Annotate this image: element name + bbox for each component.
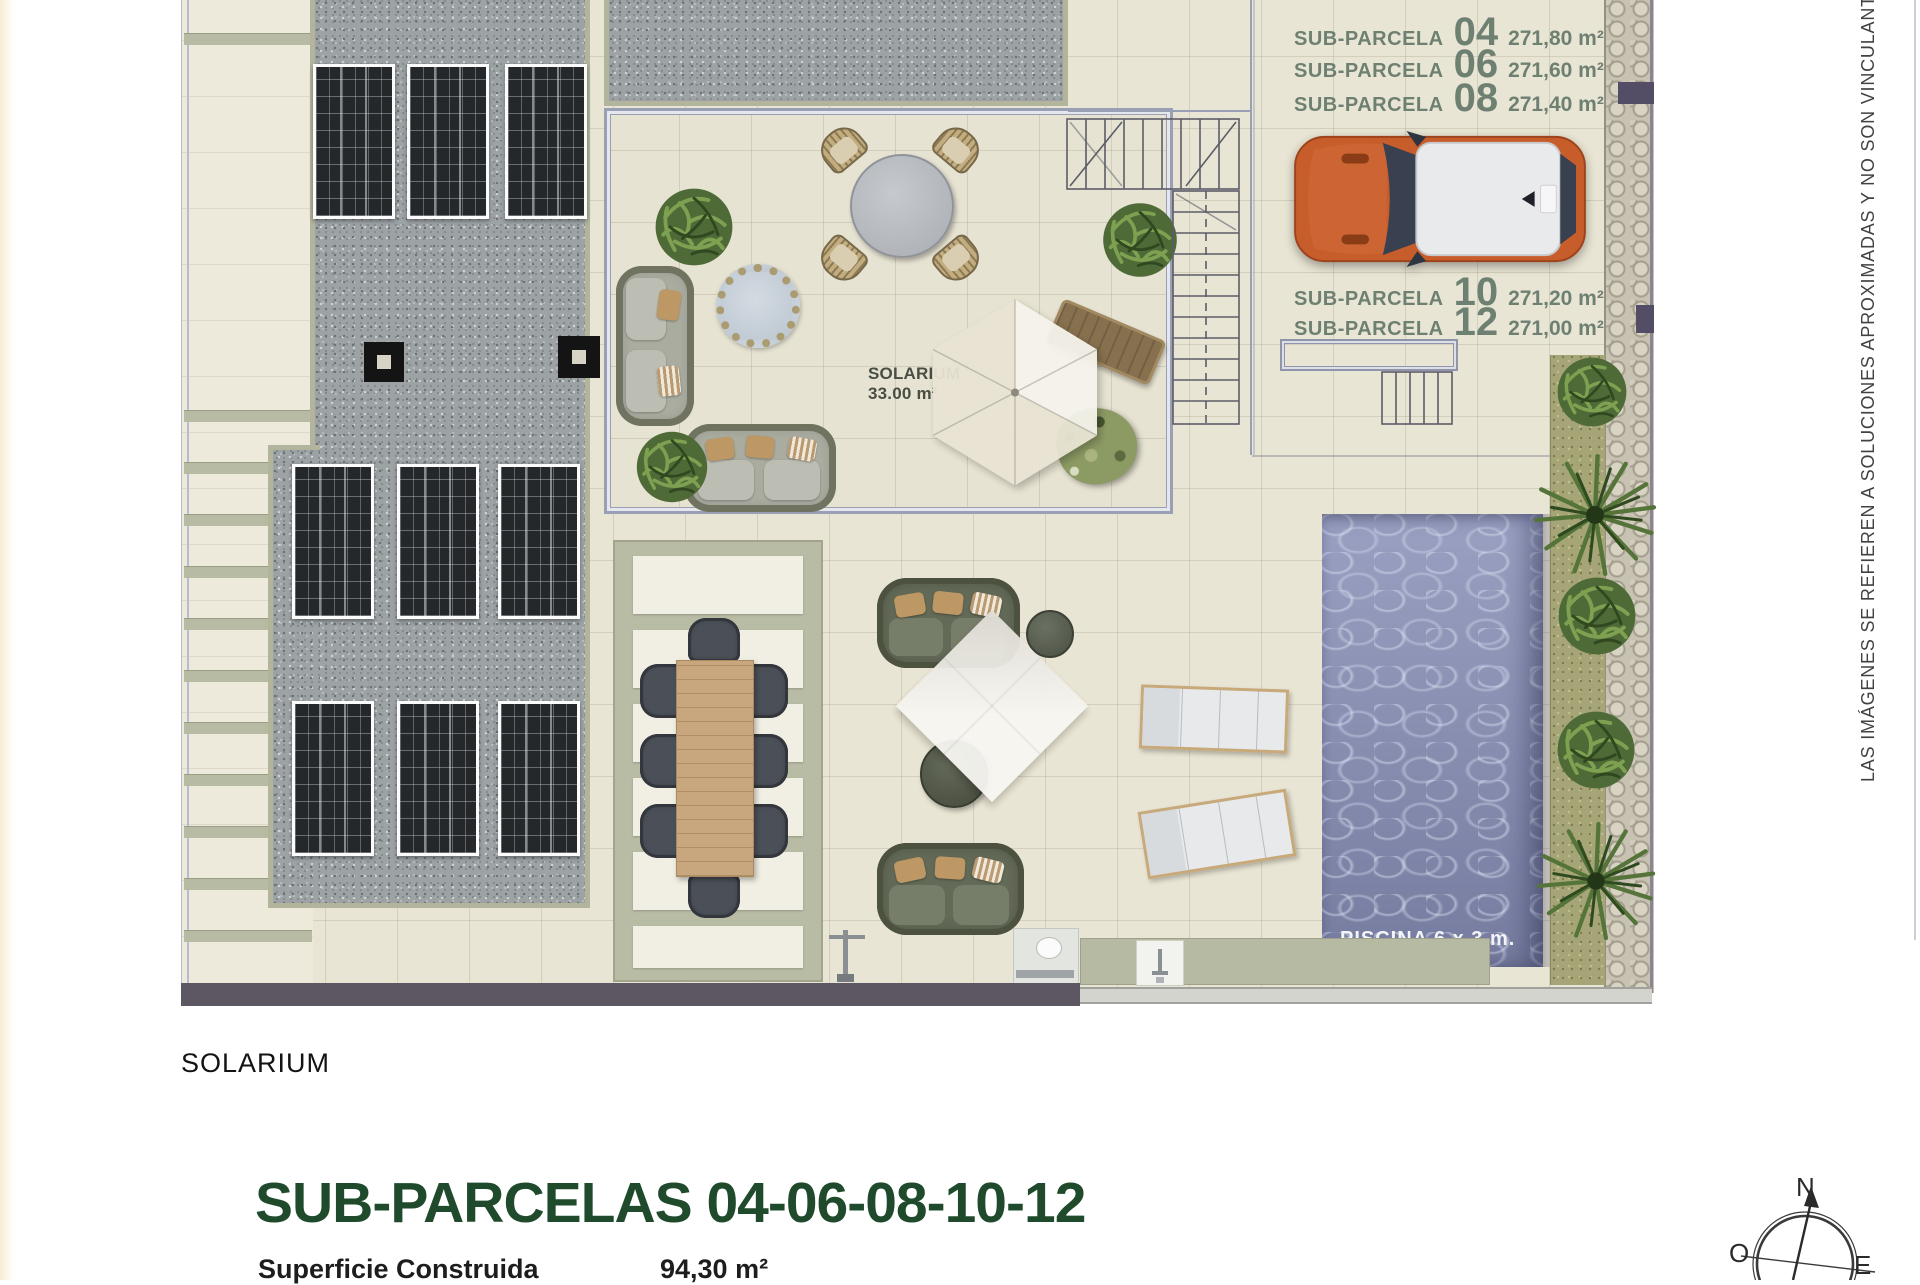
bush-icon: [646, 179, 742, 275]
solar-panel: [292, 464, 374, 619]
surface-value: 94,30 m²: [660, 1254, 768, 1285]
compass-north-label: N: [1796, 1172, 1815, 1203]
gravel-roof-upper: [604, 0, 1068, 106]
parcel-label: SUB-PARCELA: [1294, 318, 1444, 341]
page-edge-line: [1914, 0, 1916, 940]
compass-east-label: E: [1854, 1250, 1871, 1281]
round-table: [850, 154, 954, 258]
floor-label: SOLARIUM: [181, 1048, 330, 1079]
outdoor-shower: [1136, 940, 1184, 986]
parcel-area: 271,00 m²: [1508, 317, 1604, 341]
boundary-wall-dark: [181, 983, 1080, 1006]
grass-icon: [1531, 451, 1659, 579]
round-rug: [716, 264, 800, 348]
walkway-beam: [184, 410, 312, 422]
dining-table: [676, 660, 754, 877]
parcel-number: 12: [1454, 302, 1499, 342]
parcel-area: 271,40 m²: [1508, 93, 1604, 117]
car-top-view-icon: [1290, 130, 1590, 268]
zone-boundary: [1250, 0, 1252, 455]
solar-panel: [313, 64, 395, 219]
bush-icon: [1548, 702, 1644, 798]
solar-panel: [498, 701, 580, 856]
bush-icon: [628, 423, 716, 511]
page-title: SUB-PARCELAS 04-06-08-10-12: [255, 1170, 1085, 1236]
sun-lounger: [1139, 684, 1289, 753]
pergola-slat: [633, 556, 803, 614]
wall-marker: [1636, 305, 1654, 333]
hexagonal-umbrella-icon: [933, 299, 1097, 486]
parcel-label: SUB-PARCELA: [1294, 94, 1444, 117]
floorplan-page: { "plan": { "parcel_rows_top": [ {"label…: [0, 0, 1920, 1280]
walkway-beam: [184, 930, 312, 942]
staircase-small: [1381, 371, 1453, 425]
sofa: [616, 266, 694, 426]
shower-pole: [829, 930, 865, 982]
planter-wall: [1280, 339, 1458, 371]
sofa: [877, 843, 1024, 935]
disclaimer-text: LAS IMÁGENES SE REFIEREN A SOLUCIONES AP…: [1848, 0, 1888, 782]
zone-boundary: [1068, 110, 1252, 112]
boundary-wall-light: [1080, 987, 1652, 1004]
dining-chair: [688, 618, 740, 662]
dining-chair: [688, 874, 740, 918]
skylight-icon: [558, 336, 600, 378]
skylight-icon: [364, 342, 404, 382]
page-left-tint: [0, 0, 14, 1280]
bush-icon: [1549, 568, 1645, 664]
solar-panel: [397, 464, 479, 619]
solar-panel: [292, 701, 374, 856]
compass-west-label: O: [1729, 1238, 1749, 1269]
walkway-beam: [184, 33, 312, 45]
grass-icon: [1534, 819, 1658, 943]
staircase-horizontal: [1066, 118, 1240, 190]
solar-panel: [505, 64, 587, 219]
parcel-row: SUB-PARCELA 08 271,40 m²: [1294, 78, 1604, 118]
bush-icon: [1549, 349, 1635, 435]
disclaimer-label: LAS IMÁGENES SE REFIEREN A SOLUCIONES AP…: [1858, 0, 1879, 782]
solar-panel: [407, 64, 489, 219]
solar-panel: [498, 464, 580, 619]
parcel-number: 08: [1454, 78, 1499, 118]
pergola-slat: [633, 926, 803, 968]
solar-panel: [397, 701, 479, 856]
surface-label: Superficie Construida: [258, 1254, 539, 1285]
parcel-row: SUB-PARCELA 12 271,00 m²: [1294, 302, 1604, 342]
pool-water: [1322, 514, 1543, 967]
wall-marker: [1618, 82, 1654, 104]
outdoor-kitchen: [1013, 928, 1079, 986]
staircase-vertical: [1172, 190, 1240, 425]
